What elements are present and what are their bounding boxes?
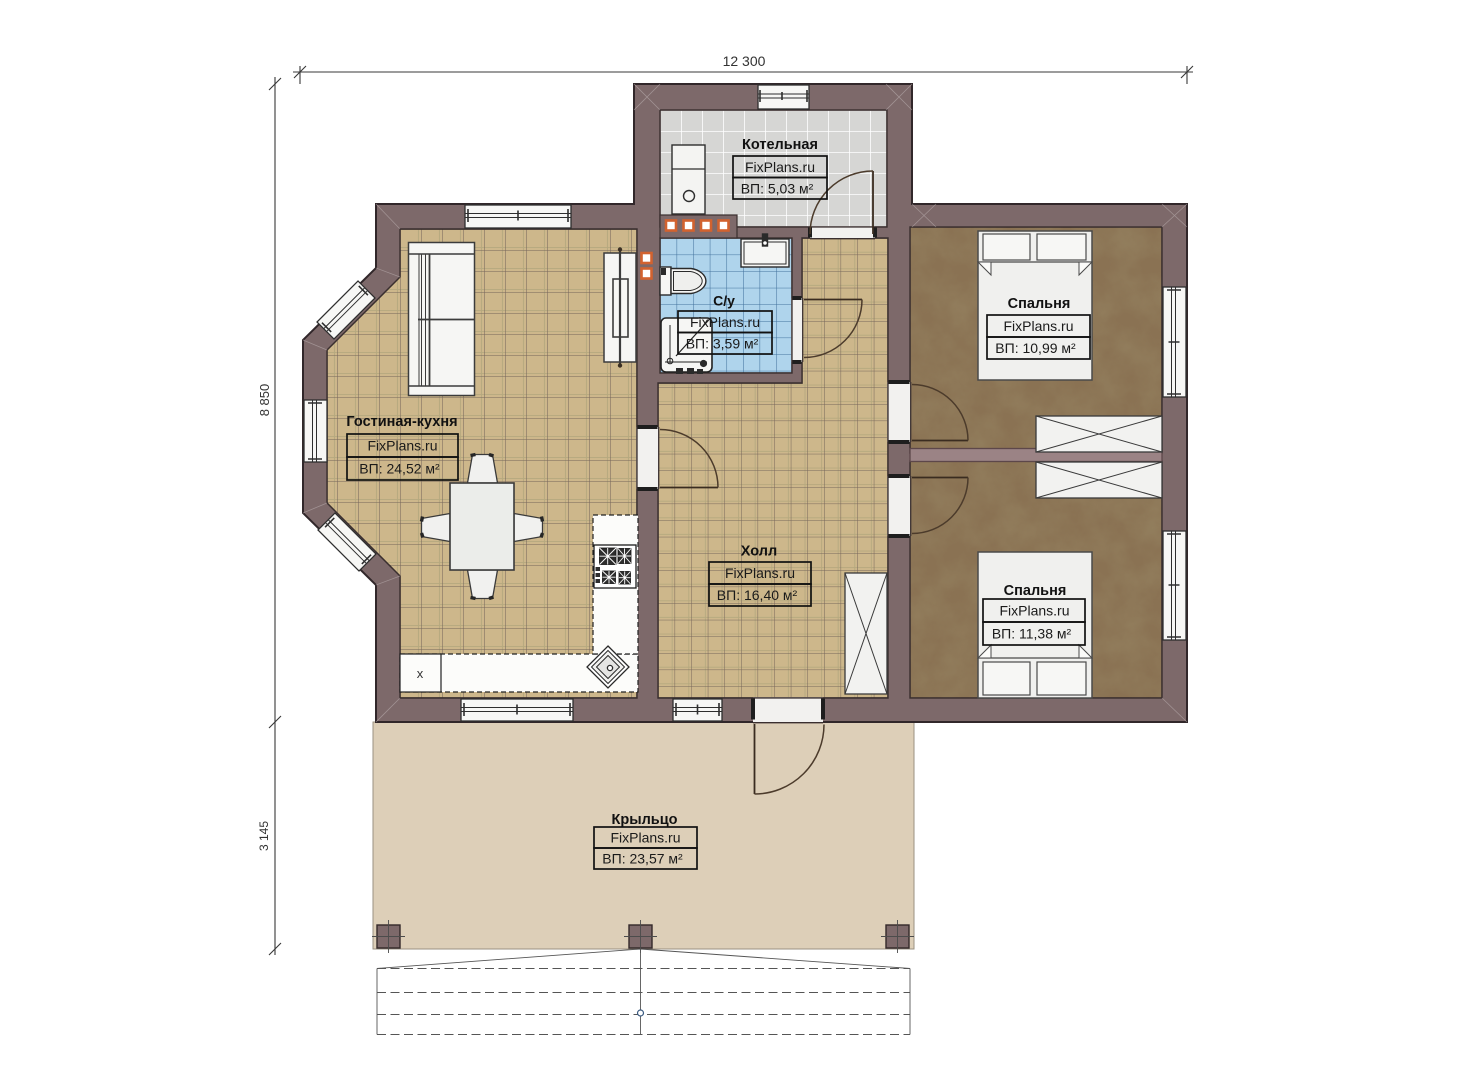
svg-text:Спальня: Спальня bbox=[1008, 296, 1071, 312]
svg-text:Гостиная-кухня: Гостиная-кухня bbox=[346, 414, 457, 430]
svg-text:3 145: 3 145 bbox=[257, 821, 271, 851]
svg-text:FixPlans.ru: FixPlans.ru bbox=[745, 159, 815, 175]
svg-text:ВП: 10,99 м²: ВП: 10,99 м² bbox=[995, 340, 1076, 356]
svg-text:FixPlans.ru: FixPlans.ru bbox=[725, 565, 795, 581]
svg-text:Крыльцо: Крыльцо bbox=[612, 812, 678, 828]
svg-text:Холл: Холл bbox=[741, 544, 777, 560]
svg-text:ВП: 5,03 м²: ВП: 5,03 м² bbox=[741, 181, 814, 197]
svg-text:FixPlans.ru: FixPlans.ru bbox=[690, 314, 760, 330]
svg-text:ВП: 3,59 м²: ВП: 3,59 м² bbox=[686, 336, 759, 352]
svg-text:FixPlans.ru: FixPlans.ru bbox=[999, 603, 1069, 619]
svg-text:8 850: 8 850 bbox=[257, 384, 272, 417]
svg-text:Спальня: Спальня bbox=[1004, 583, 1067, 599]
svg-text:x: x bbox=[417, 666, 424, 681]
svg-text:ВП: 11,38 м²: ВП: 11,38 м² bbox=[992, 626, 1072, 642]
svg-text:FixPlans.ru: FixPlans.ru bbox=[610, 830, 680, 846]
svg-text:С/у: С/у bbox=[713, 293, 735, 309]
svg-text:ВП: 16,40 м²: ВП: 16,40 м² bbox=[717, 587, 798, 603]
svg-text:ВП: 23,57 м²: ВП: 23,57 м² bbox=[602, 851, 683, 867]
svg-text:FixPlans.ru: FixPlans.ru bbox=[367, 438, 437, 454]
svg-text:ВП: 24,52 м²: ВП: 24,52 м² bbox=[359, 461, 440, 477]
svg-text:12 300: 12 300 bbox=[723, 53, 766, 69]
svg-text:FixPlans.ru: FixPlans.ru bbox=[1003, 318, 1073, 334]
svg-text:Котельная: Котельная bbox=[742, 137, 818, 153]
